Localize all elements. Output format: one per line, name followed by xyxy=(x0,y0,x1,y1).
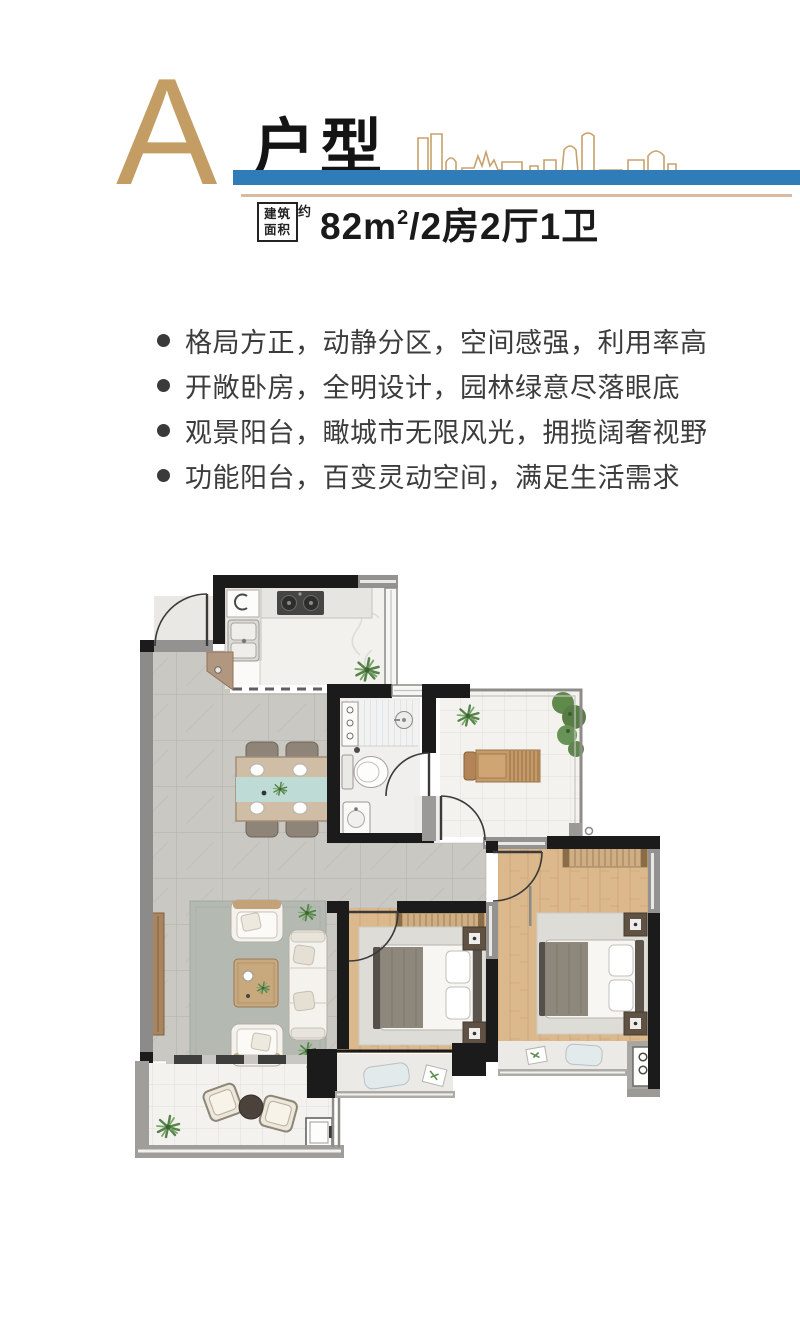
lounge-chair xyxy=(464,750,540,782)
feature-item: 观景阳台，瞰城市无限风光，拥揽阔奢视野 xyxy=(157,408,708,453)
feature-item: 开敞卧房，全明设计，园林绿意尽落眼底 xyxy=(157,363,708,408)
feature-item: 格局方正，动静分区，空间感强，利用率高 xyxy=(157,318,708,363)
area-badge-line1: 建筑 xyxy=(264,206,291,222)
area-value: 82m2/2房2厅1卫 xyxy=(320,196,599,250)
area-badge-line2: 面积 xyxy=(264,222,291,238)
nightstand xyxy=(624,913,647,936)
armchair xyxy=(231,900,283,942)
feature-item: 功能阳台，百变灵动空间，满足生活需求 xyxy=(157,453,708,498)
balcony-unit xyxy=(306,1118,333,1147)
bed xyxy=(539,940,644,1018)
area-badge: 建筑 面积 约 xyxy=(257,202,298,242)
coffee-table xyxy=(234,959,278,1007)
nightstand xyxy=(624,1012,647,1035)
floor-plan xyxy=(130,556,690,1211)
bullet-icon xyxy=(157,334,170,347)
nightstand xyxy=(463,1022,486,1045)
wardrobe xyxy=(563,848,647,867)
bullet-icon xyxy=(157,469,170,482)
stove xyxy=(277,591,324,615)
city-skyline-icon xyxy=(404,126,800,176)
bullet-icon xyxy=(157,424,170,437)
bedroom-1 xyxy=(359,913,486,1045)
bed xyxy=(373,945,482,1030)
toilet xyxy=(342,755,388,789)
feature-list: 格局方正，动静分区，空间感强，利用率高 开敞卧房，全明设计，园林绿意尽落眼底 观… xyxy=(157,318,708,498)
hand-basin xyxy=(343,802,370,835)
sofa xyxy=(289,930,327,1040)
area-spec-row: 建筑 面积 约 82m2/2房2厅1卫 xyxy=(257,202,599,250)
area-badge-approx: 约 xyxy=(298,201,311,220)
flyer-page: A 户型 建筑 面积 约 82m2/2房2厅1卫 格局方正，动静分区，空间感强，… xyxy=(0,0,800,1328)
nightstand xyxy=(463,927,486,950)
bullet-icon xyxy=(157,379,170,392)
balcony-table xyxy=(239,1095,263,1119)
title-underline-bar xyxy=(233,170,800,185)
plan-letter: A xyxy=(116,56,217,208)
